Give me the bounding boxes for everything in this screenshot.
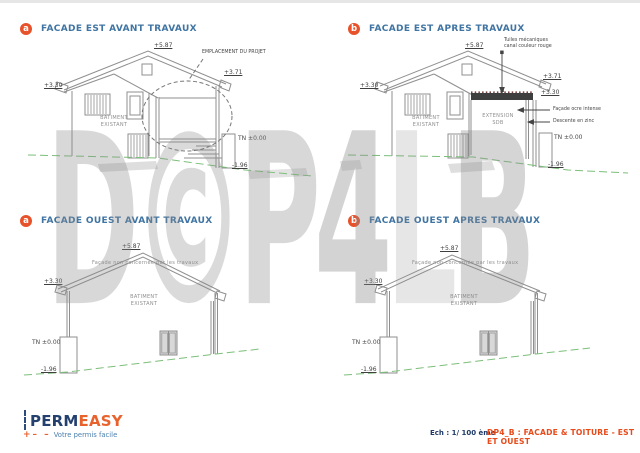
existing-building-label: BATIMENT EXISTANT	[440, 294, 488, 307]
not-concerned-note: Façade non concernée par les travaux	[412, 260, 518, 267]
low-level-label: -1.96	[548, 161, 564, 168]
extension-label: EXTENSION SDB	[476, 113, 520, 126]
low-level-label: -1.96	[361, 366, 377, 373]
logo-plus-icon: +	[23, 432, 31, 439]
sheet-title: DP4_B : FACADE & TOITURE - EST ET OUEST	[487, 428, 640, 446]
panel-facade-ouest-avant: a FACADE OUEST AVANT TRAVAUX +5.	[20, 212, 320, 398]
elevation-left-eave-label: +3.30	[364, 278, 382, 285]
roof-tiles-annotation: Tuiles mécaniques canal couleur rouge	[504, 38, 552, 50]
facade-color-annotation: Façade ocre intense	[553, 107, 601, 113]
elevation-right-top-label: +3.71	[543, 73, 561, 80]
ground-level-label: TN ±0.00	[554, 134, 582, 141]
elevation-right-eave-label: +3.30	[541, 89, 559, 96]
ground-level-label: TN ±0.00	[352, 339, 380, 346]
logo-tagline: Votre permis facile	[54, 431, 118, 439]
elevation-ridge-label: +5.87	[154, 42, 172, 49]
elevation-left-eave-label: +3.30	[44, 82, 62, 89]
not-concerned-note: Façade non concernée par les travaux	[92, 260, 198, 267]
elevation-left-eave-label: +3.30	[360, 82, 378, 89]
zinc-downpipe-annotation: Descente en zinc	[553, 119, 594, 125]
ground-level-label: TN ±0.00	[238, 135, 266, 142]
panel-facade-est-avant: a FACADE EST AVANT TRAVAUX	[20, 18, 320, 210]
scale-label: Ech : 1/ 100 ème	[430, 429, 495, 437]
low-level-label: -1.96	[41, 366, 57, 373]
logo-name: PERMEASY	[30, 412, 123, 430]
existing-building-label: BATIMENT EXISTANT	[90, 115, 138, 128]
document-page: a FACADE EST AVANT TRAVAUX	[0, 0, 640, 453]
logo-dashes-icon: – –	[33, 432, 51, 438]
panel-facade-ouest-apres: b FACADE OUEST APRES TRAVAUX +5.	[340, 212, 640, 398]
page-top-edge	[0, 0, 640, 3]
project-location-label: EMPLACEMENT DU PROJET	[202, 50, 266, 56]
elevation-ridge-label: +5.87	[465, 42, 483, 49]
elevation-drawing-ouest-apres	[340, 212, 640, 398]
panel-facade-est-apres: b FACADE EST APRES TRAVAUX	[340, 18, 640, 210]
elevation-drawing-ouest-avant	[20, 212, 320, 398]
logo-dashed-line-icon	[24, 410, 26, 430]
low-level-label: -1.96	[232, 162, 248, 169]
existing-building-label: BATIMENT EXISTANT	[402, 115, 450, 128]
existing-building-label: BATIMENT EXISTANT	[120, 294, 168, 307]
permeasy-logo: PERMEASY + – – Votre permis facile	[20, 404, 150, 446]
logo-tagline-row: + – – Votre permis facile	[23, 431, 117, 439]
ground-level-label: TN ±0.00	[32, 339, 60, 346]
elevation-right-eave-label: +3.71	[224, 69, 242, 76]
elevation-ridge-label: +5.87	[122, 243, 140, 250]
elevation-ridge-label: +5.87	[440, 245, 458, 252]
elevation-left-eave-label: +3.30	[44, 278, 62, 285]
